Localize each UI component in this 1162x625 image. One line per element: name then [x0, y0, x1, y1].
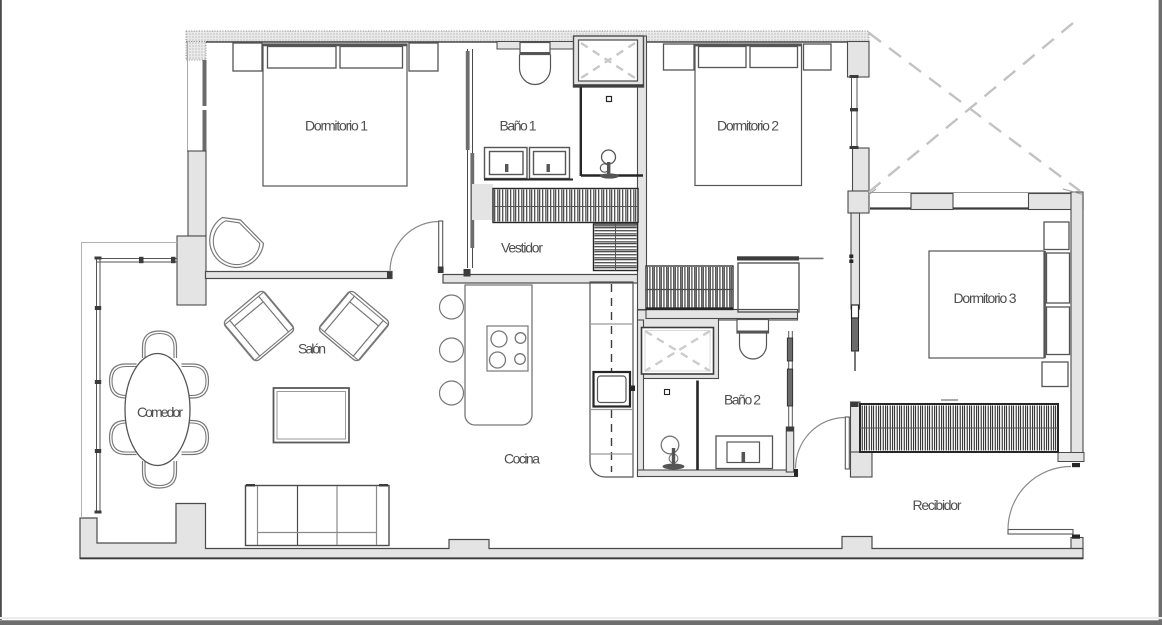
svg-text:Dormitorio 3: Dormitorio 3 [954, 290, 1017, 306]
svg-text:Vestidor: Vestidor [501, 240, 543, 256]
svg-text:Baño 1: Baño 1 [500, 118, 537, 134]
svg-text:Recibidor: Recibidor [913, 497, 962, 513]
svg-text:Cocina: Cocina [504, 451, 540, 467]
svg-text:Dormitorio 2: Dormitorio 2 [717, 118, 779, 134]
svg-text:Dormitorio 1: Dormitorio 1 [305, 118, 368, 134]
svg-text:Baño 2: Baño 2 [724, 392, 761, 408]
svg-text:Salón: Salón [298, 341, 326, 357]
svg-text:Comedor: Comedor [137, 404, 183, 420]
